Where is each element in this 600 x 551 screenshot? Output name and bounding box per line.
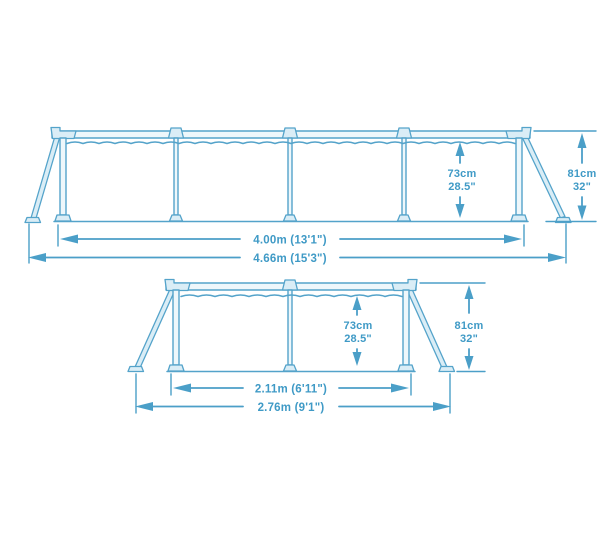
arrowhead-left (28, 253, 46, 262)
frame-posts (174, 138, 406, 215)
frame-height-in-label: 32" (460, 333, 478, 345)
inner-length-label: 4.00m (13'1") (253, 235, 326, 247)
arrowhead-down (465, 356, 474, 370)
water-height-cm-label: 73cm (448, 168, 477, 180)
arrowhead-up (456, 142, 465, 156)
arrowhead-right (548, 253, 566, 262)
water-height-dimension: 73cm 28.5" (344, 296, 373, 366)
frame-height-cm-label: 81cm (455, 320, 484, 332)
left-wall (173, 290, 179, 365)
arrowhead-down (456, 204, 465, 218)
right-support-leg (523, 136, 566, 218)
top-rail-left-cap (165, 280, 190, 291)
short-side-view: 2.11m (6'11") 2.76m (9'1") 73cm 28.5" (128, 280, 485, 415)
water-height-in-label: 28.5" (448, 181, 476, 193)
arrowhead-up (578, 133, 587, 148)
frame-height-cm-label: 81cm (568, 168, 597, 180)
inner-length-dimension: 4.00m (13'1") (58, 225, 524, 247)
right-wall (403, 290, 409, 365)
top-rail-post-cap (283, 280, 298, 290)
right-support-leg-foot (439, 367, 455, 372)
water-height-in-label: 28.5" (344, 333, 372, 345)
frame-height-in-label: 32" (573, 181, 591, 193)
inner-length-dimension: 2.11m (6'11") (171, 374, 411, 396)
arrowhead-left (173, 384, 191, 393)
top-rail-right-cap (506, 128, 531, 139)
right-wall (516, 138, 522, 215)
arrowhead-down (353, 352, 362, 366)
right-support-leg (407, 288, 447, 369)
wall-and-post-feet (168, 365, 414, 371)
left-support-leg-foot (128, 367, 144, 372)
long-side-view: 4.00m (13'1") 4.66m (15'3") 73cm 28.5" (25, 128, 596, 266)
left-support-leg-foot (25, 218, 41, 223)
frame-post (288, 290, 292, 365)
arrowhead-right (504, 235, 522, 244)
water-height-cm-label: 73cm (344, 320, 373, 332)
top-rail-right-cap (392, 280, 417, 291)
left-support-leg (31, 136, 60, 220)
inner-length-label: 2.11m (6'11") (255, 384, 327, 396)
arrowhead-up (353, 296, 362, 310)
diagram-canvas: 4.00m (13'1") 4.66m (15'3") 73cm 28.5" (0, 0, 600, 551)
arrowhead-down (578, 206, 587, 221)
arrowhead-left (135, 402, 153, 411)
arrowhead-up (465, 285, 474, 299)
wall-and-post-feet (55, 215, 527, 221)
arrowhead-right (391, 384, 409, 393)
water-height-dimension: 73cm 28.5" (448, 142, 477, 218)
outer-length-label: 2.76m (9'1") (258, 402, 325, 414)
top-rail-left-cap (51, 128, 76, 139)
arrowhead-right (433, 402, 451, 411)
outer-length-label: 4.66m (15'3") (253, 253, 326, 265)
left-wall (60, 138, 66, 215)
left-support-leg (135, 288, 175, 369)
arrowhead-left (60, 235, 78, 244)
pool-dimensions-diagram: 4.00m (13'1") 4.66m (15'3") 73cm 28.5" (0, 0, 600, 551)
